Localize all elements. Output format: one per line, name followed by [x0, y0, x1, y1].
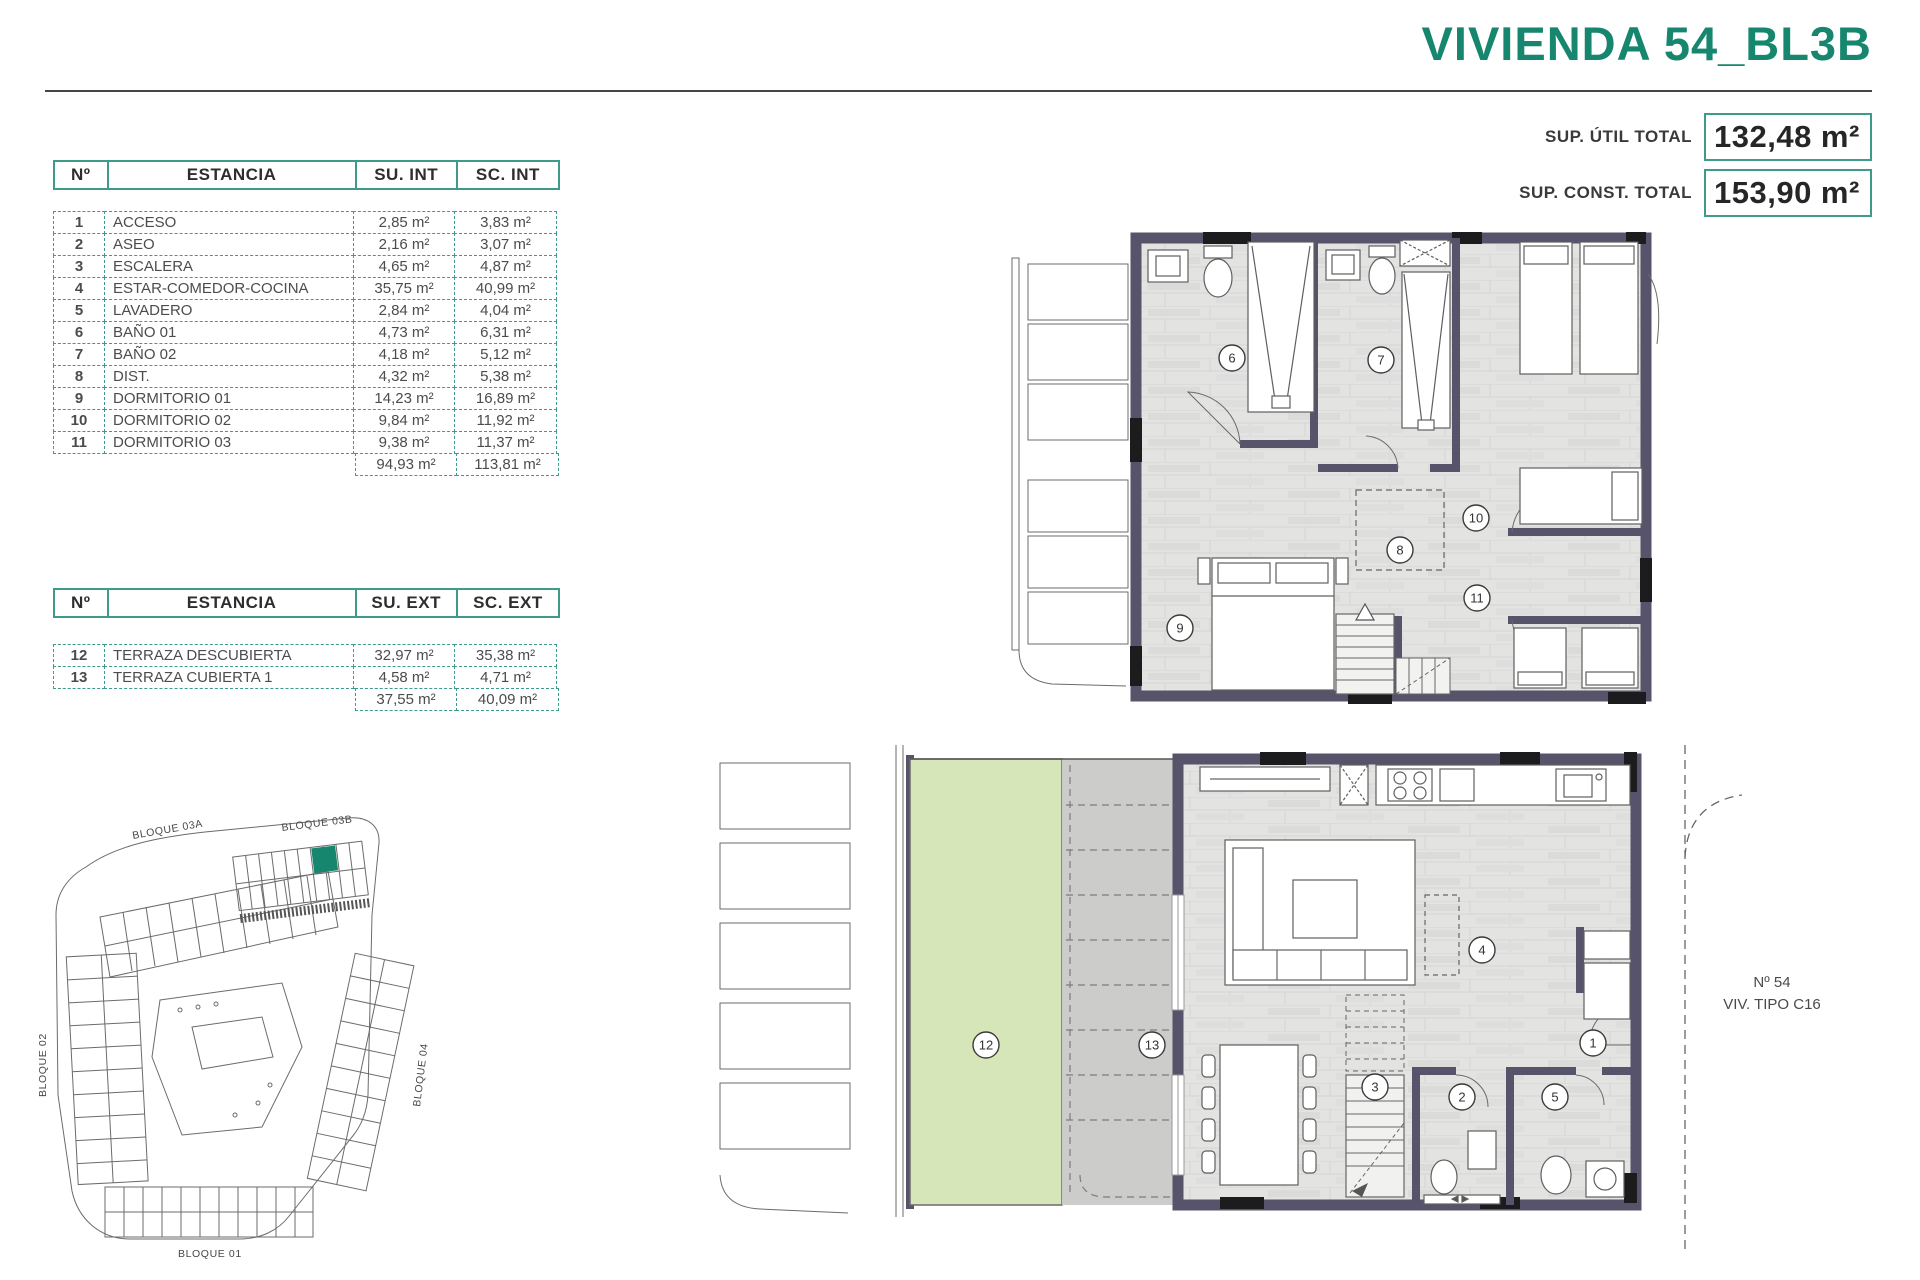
sup-util-total-row: SUP. ÚTIL TOTAL 132,48 m²	[1545, 112, 1872, 162]
svg-text:9: 9	[1176, 621, 1183, 636]
chair-icon	[1303, 1055, 1316, 1077]
laundry-sink-icon	[1541, 1156, 1571, 1194]
table-row: 2ASEO2,16 m²3,07 m²	[53, 233, 560, 256]
chair-icon	[1202, 1119, 1215, 1141]
unit-location-marker	[311, 845, 338, 873]
table-total-row: 94,93 m²113,81 m²	[355, 453, 560, 476]
table-total-row: 37,55 m²40,09 m²	[355, 688, 560, 711]
room-number-5: 5	[1542, 1084, 1568, 1110]
room-number-6: 6	[1219, 345, 1245, 371]
room-number-12: 12	[973, 1032, 999, 1058]
toilet-icon	[1431, 1160, 1457, 1194]
chair-icon	[1202, 1151, 1215, 1173]
table-row: 6BAÑO 014,73 m²6,31 m²	[53, 321, 560, 344]
page-title: VIVIENDA 54_BL3B	[1422, 16, 1872, 71]
room-number-2: 2	[1449, 1084, 1475, 1110]
nightstand-icon	[1336, 558, 1348, 584]
col-header-sc: SC. EXT	[456, 590, 558, 616]
sink-basin-icon	[1156, 256, 1180, 276]
chair-icon	[1303, 1151, 1316, 1173]
sup-const-total-value: 153,90 m²	[1704, 169, 1872, 217]
table-row: 10DORMITORIO 029,84 m²11,92 m²	[53, 409, 560, 432]
upper-floor-plan: 6 7 8 9 10 11	[1000, 228, 1660, 710]
neighbor-railing	[1012, 258, 1128, 686]
site-courtyard	[152, 983, 302, 1135]
terrace-uncovered	[906, 755, 1062, 1209]
site-block-03b	[233, 841, 370, 918]
sup-const-total-label: SUP. CONST. TOTAL	[1519, 183, 1692, 203]
coffee-table-icon	[1293, 880, 1357, 938]
svg-text:10: 10	[1469, 511, 1483, 526]
room-number-13: 13	[1139, 1032, 1165, 1058]
site-label-bloque02: BLOQUE 02	[37, 1033, 49, 1097]
svg-text:1: 1	[1589, 1036, 1596, 1051]
svg-text:4: 4	[1478, 943, 1485, 958]
site-label-bloque03a: BLOQUE 03A	[131, 818, 203, 842]
oven-icon	[1440, 769, 1474, 801]
table-row: 1ACCESO2,85 m²3,83 m²	[53, 211, 560, 234]
table-row: 12TERRAZA DESCUBIERTA32,97 m²35,38 m²	[53, 644, 560, 667]
toilet-icon	[1204, 259, 1232, 297]
col-header-room: ESTANCIA	[107, 590, 355, 616]
sink-basin-icon	[1332, 255, 1354, 274]
entry-closet-icon	[1584, 931, 1630, 1019]
room-number-9: 9	[1167, 615, 1193, 641]
table-row: 13TERRAZA CUBIERTA 14,58 m²4,71 m²	[53, 666, 560, 689]
site-label-bloque04: BLOQUE 04	[411, 1043, 430, 1108]
room-number-3: 3	[1362, 1074, 1388, 1100]
toilet-tank-icon	[1369, 246, 1395, 257]
chair-icon	[1202, 1055, 1215, 1077]
toilet-tank-icon	[1204, 246, 1232, 258]
table-row: 7BAÑO 024,18 m²5,12 m²	[53, 343, 560, 366]
shower-tray-icon	[1402, 272, 1450, 428]
shower-tray-icon	[1248, 242, 1314, 412]
room-number-1: 1	[1580, 1030, 1606, 1056]
sofa-icon	[1225, 840, 1415, 985]
col-header-room: ESTANCIA	[107, 162, 355, 188]
site-boundary	[56, 818, 379, 1239]
site-plan: BLOQUE 03A BLOQUE 03B BLOQUE 02 BLOQUE 0…	[30, 795, 430, 1265]
sup-util-total-label: SUP. ÚTIL TOTAL	[1545, 127, 1692, 147]
room-number-11: 11	[1464, 585, 1490, 611]
exterior-table-body: 12TERRAZA DESCUBIERTA32,97 m²35,38 m² 13…	[53, 645, 560, 711]
svg-text:7: 7	[1377, 353, 1384, 368]
svg-text:12: 12	[979, 1038, 993, 1053]
interior-table-body: 1ACCESO2,85 m²3,83 m² 2ASEO2,16 m²3,07 m…	[53, 212, 560, 476]
svg-text:11: 11	[1470, 591, 1484, 606]
table-row: 9DORMITORIO 0114,23 m²16,89 m²	[53, 387, 560, 410]
table-row: 4ESTAR-COMEDOR-COCINA35,75 m²40,99 m²	[53, 277, 560, 300]
table-row: 5LAVADERO2,84 m²4,04 m²	[53, 299, 560, 322]
table-row: 11DORMITORIO 039,38 m²11,37 m²	[53, 431, 560, 454]
sink-icon	[1468, 1131, 1496, 1169]
lower-floor-plan: Nº 54 VIV. TIPO C16 1 2 3 4 5 12 13	[700, 745, 1860, 1250]
unit-number-label: Nº 54	[1753, 974, 1790, 991]
header-divider	[45, 90, 1872, 92]
svg-text:3: 3	[1371, 1080, 1378, 1095]
svg-text:13: 13	[1145, 1038, 1159, 1053]
svg-text:8: 8	[1396, 543, 1403, 558]
table-row: 3ESCALERA4,65 m²4,87 m²	[53, 255, 560, 278]
svg-text:2: 2	[1458, 1090, 1465, 1105]
chair-icon	[1303, 1087, 1316, 1109]
site-label-bloque03b: BLOQUE 03B	[281, 813, 353, 834]
col-header-n: Nº	[55, 590, 107, 616]
chair-icon	[1303, 1119, 1316, 1141]
sup-const-total-row: SUP. CONST. TOTAL 153,90 m²	[1519, 168, 1872, 218]
neighbor-railing	[720, 745, 903, 1217]
col-header-sc: SC. INT	[456, 162, 558, 188]
unit-type-label: VIV. TIPO C16	[1723, 996, 1821, 1013]
room-number-7: 7	[1368, 347, 1394, 373]
table-row: 8DIST.4,32 m²5,38 m²	[53, 365, 560, 388]
svg-text:6: 6	[1228, 351, 1235, 366]
sup-util-total-value: 132,48 m²	[1704, 113, 1872, 161]
nightstand-icon	[1198, 558, 1210, 584]
exterior-table-header: Nº ESTANCIA SU. EXT SC. EXT	[53, 588, 560, 618]
chair-icon	[1202, 1087, 1215, 1109]
svg-text:5: 5	[1551, 1090, 1558, 1105]
room-number-10: 10	[1463, 505, 1489, 531]
site-block-04	[307, 953, 414, 1190]
site-label-bloque01: BLOQUE 01	[178, 1248, 242, 1260]
site-block-02	[66, 953, 148, 1184]
room-number-8: 8	[1387, 537, 1413, 563]
col-header-su: SU. EXT	[355, 590, 456, 616]
col-header-su: SU. INT	[355, 162, 456, 188]
col-header-n: Nº	[55, 162, 107, 188]
interior-table-header: Nº ESTANCIA SU. INT SC. INT	[53, 160, 560, 190]
site-block-01	[105, 1187, 313, 1237]
room-number-4: 4	[1469, 937, 1495, 963]
toilet-icon	[1369, 258, 1395, 294]
